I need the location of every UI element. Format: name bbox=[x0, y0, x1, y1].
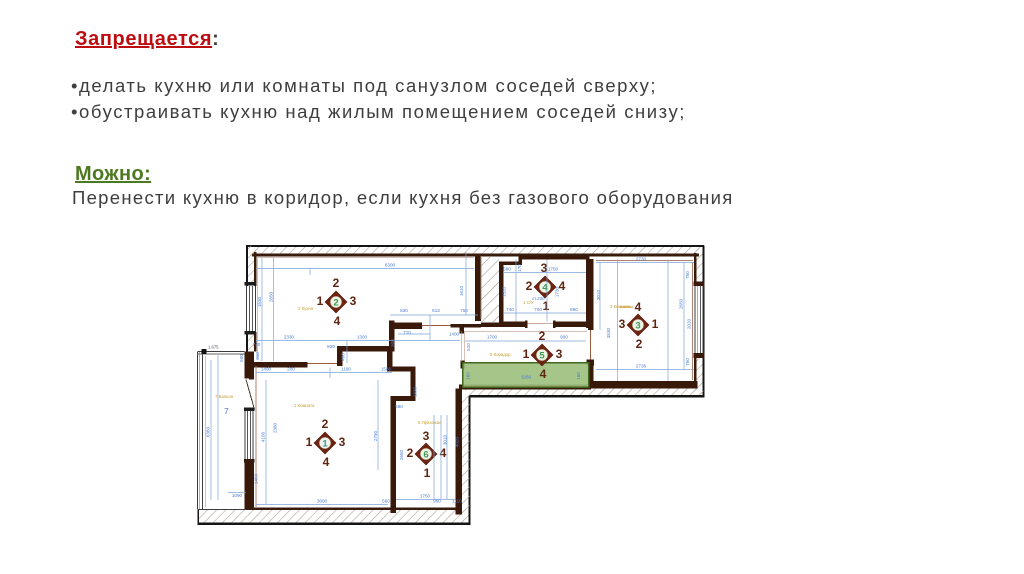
svg-text:310: 310 bbox=[255, 352, 260, 360]
svg-text:1750: 1750 bbox=[548, 267, 559, 272]
svg-text:4100: 4100 bbox=[261, 431, 266, 442]
svg-text:1 Комната: 1 Комната bbox=[294, 403, 315, 408]
svg-text:2: 2 bbox=[322, 417, 329, 431]
svg-text:580: 580 bbox=[503, 267, 511, 272]
svg-text:3: 3 bbox=[350, 294, 357, 308]
svg-text:2650: 2650 bbox=[268, 291, 273, 302]
svg-text:740: 740 bbox=[506, 307, 514, 312]
svg-text:740: 740 bbox=[253, 342, 261, 347]
svg-text:3: 3 bbox=[339, 435, 346, 449]
svg-text:1300: 1300 bbox=[357, 335, 368, 340]
svg-text:170: 170 bbox=[517, 264, 522, 272]
svg-text:613: 613 bbox=[432, 308, 440, 313]
svg-text:1: 1 bbox=[424, 466, 431, 480]
svg-text:2020: 2020 bbox=[687, 318, 692, 329]
svg-text:660: 660 bbox=[382, 499, 390, 504]
svg-text:1: 1 bbox=[652, 317, 659, 331]
svg-text:5 Коридор: 5 Коридор bbox=[490, 352, 511, 357]
svg-text:1530: 1530 bbox=[257, 296, 262, 307]
svg-text:1110: 1110 bbox=[452, 499, 462, 504]
svg-text:1: 1 bbox=[306, 435, 313, 449]
svg-text:890: 890 bbox=[570, 307, 578, 312]
svg-text:3260: 3260 bbox=[521, 375, 532, 380]
svg-text:3: 3 bbox=[635, 320, 640, 331]
svg-text:6: 6 bbox=[423, 449, 428, 460]
svg-text:3: 3 bbox=[541, 261, 548, 275]
svg-text:2330: 2330 bbox=[284, 335, 295, 340]
svg-text:1: 1 bbox=[322, 438, 328, 449]
svg-text:3: 3 bbox=[423, 429, 430, 443]
svg-text:6300: 6300 bbox=[385, 263, 396, 268]
svg-text:3530: 3530 bbox=[606, 327, 611, 338]
svg-text:1450: 1450 bbox=[254, 473, 259, 484]
svg-text:3: 3 bbox=[619, 317, 626, 331]
svg-text:2: 2 bbox=[526, 279, 533, 293]
svg-text:4: 4 bbox=[323, 455, 330, 469]
svg-text:830: 830 bbox=[400, 308, 408, 313]
svg-text:1520: 1520 bbox=[502, 286, 507, 297]
svg-text:2750: 2750 bbox=[373, 430, 378, 441]
svg-text:1: 1 bbox=[317, 294, 324, 308]
svg-text:2650: 2650 bbox=[679, 298, 684, 309]
svg-text:1330: 1330 bbox=[413, 386, 418, 397]
svg-text:4: 4 bbox=[635, 300, 642, 314]
svg-text:1190: 1190 bbox=[341, 367, 351, 372]
svg-text:400: 400 bbox=[341, 353, 346, 361]
svg-text:750: 750 bbox=[685, 358, 690, 366]
svg-text:160: 160 bbox=[576, 372, 581, 380]
svg-text:4: 4 bbox=[559, 279, 566, 293]
svg-text:4: 4 bbox=[334, 314, 341, 328]
svg-text:4: 4 bbox=[540, 367, 547, 381]
svg-text:200: 200 bbox=[287, 367, 295, 372]
svg-text:1580: 1580 bbox=[381, 367, 392, 372]
svg-text:900: 900 bbox=[390, 339, 395, 347]
svg-text:1090: 1090 bbox=[232, 493, 243, 498]
svg-text:1.675: 1.675 bbox=[208, 345, 219, 350]
svg-text:2: 2 bbox=[636, 337, 643, 351]
svg-text:1: 1 bbox=[523, 347, 530, 361]
svg-text:750: 750 bbox=[685, 271, 690, 279]
svg-text:2: 2 bbox=[333, 297, 338, 308]
svg-text:900: 900 bbox=[560, 335, 568, 340]
svg-text:750: 750 bbox=[460, 308, 468, 313]
svg-text:6360: 6360 bbox=[206, 426, 211, 437]
svg-text:1700: 1700 bbox=[487, 335, 498, 340]
svg-text:7: 7 bbox=[224, 406, 229, 416]
svg-text:700: 700 bbox=[534, 307, 542, 312]
svg-text:500: 500 bbox=[239, 354, 244, 362]
svg-text:580: 580 bbox=[395, 404, 403, 409]
svg-text:4: 4 bbox=[542, 282, 548, 293]
svg-text:ст.230: ст.230 bbox=[532, 296, 545, 301]
svg-text:1730: 1730 bbox=[555, 286, 560, 297]
svg-text:2380: 2380 bbox=[273, 422, 278, 433]
svg-text:2736: 2736 bbox=[636, 364, 647, 369]
svg-text:1750: 1750 bbox=[420, 494, 431, 499]
svg-text:4020: 4020 bbox=[455, 436, 460, 447]
svg-text:5: 5 bbox=[539, 350, 545, 361]
svg-text:3: 3 bbox=[556, 347, 563, 361]
svg-text:520: 520 bbox=[466, 343, 471, 351]
svg-text:820: 820 bbox=[327, 344, 335, 349]
svg-text:1: 1 bbox=[543, 299, 550, 313]
svg-text:2: 2 bbox=[407, 446, 414, 460]
svg-text:2730: 2730 bbox=[636, 257, 647, 262]
svg-text:960: 960 bbox=[433, 499, 441, 504]
svg-text:2650: 2650 bbox=[399, 449, 404, 460]
svg-text:6 Прихожая: 6 Прихожая bbox=[418, 420, 442, 425]
svg-text:1400: 1400 bbox=[261, 367, 272, 372]
svg-text:2: 2 bbox=[333, 276, 340, 290]
svg-text:160: 160 bbox=[466, 372, 471, 380]
svg-text:1400: 1400 bbox=[449, 332, 460, 337]
svg-text:3010: 3010 bbox=[596, 289, 601, 300]
svg-text:3600: 3600 bbox=[317, 499, 328, 504]
svg-text:1610: 1610 bbox=[459, 285, 464, 296]
svg-text:2 Кухня: 2 Кухня bbox=[298, 306, 314, 311]
